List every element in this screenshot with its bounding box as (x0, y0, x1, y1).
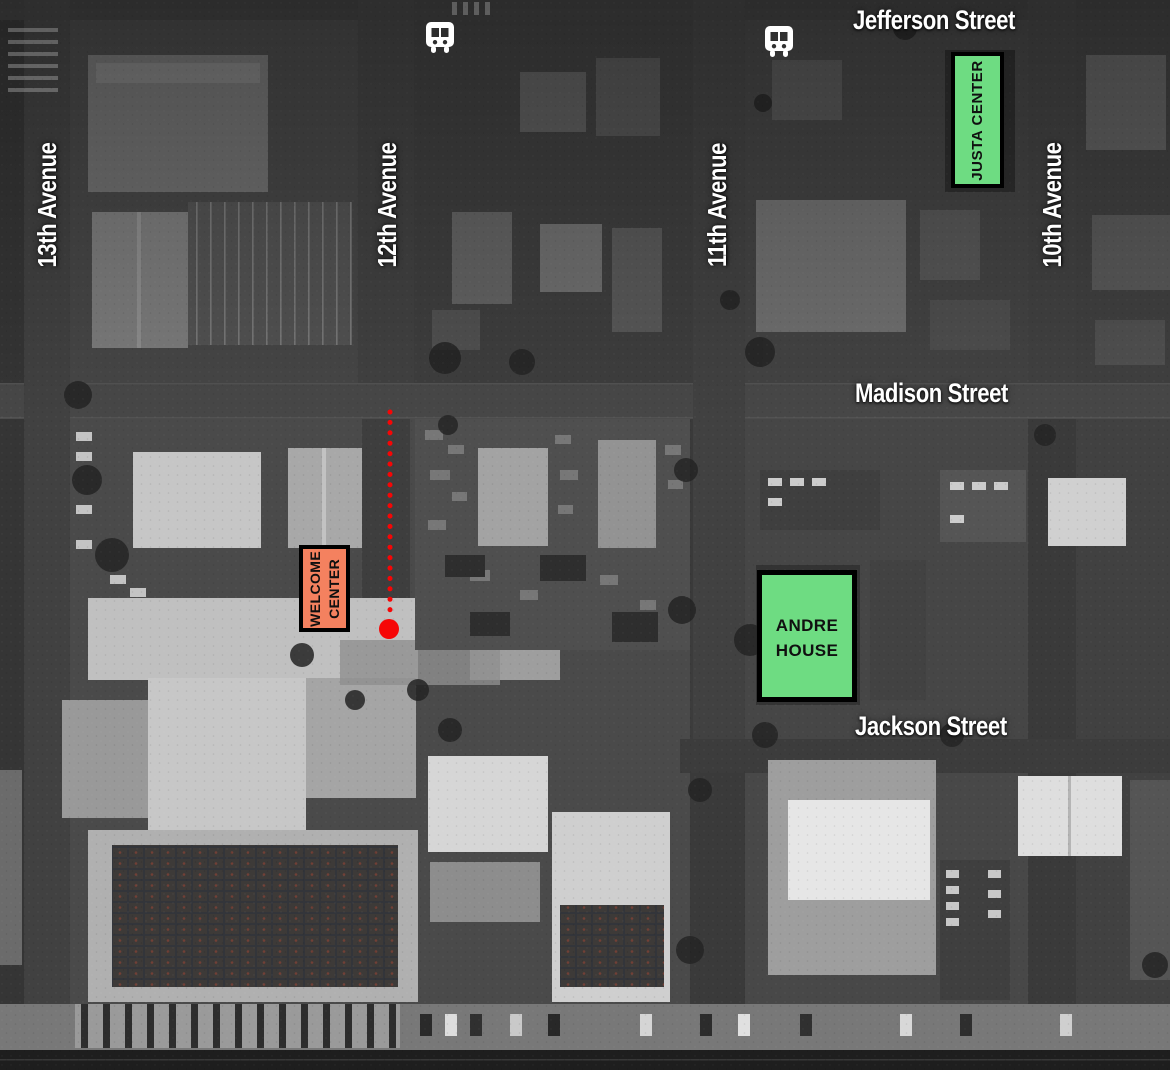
street-label-madison: Madison Street (855, 380, 1008, 407)
street-label-jefferson: Jefferson Street (853, 7, 1015, 34)
street-label-jackson: Jackson Street (855, 713, 1007, 740)
route-dotted-path (384, 404, 396, 624)
avenue-label-12th: 12th Avenue (374, 142, 400, 267)
andre-house-line2: HOUSE (776, 639, 838, 664)
justa-center-label: JUSTA CENTER (969, 60, 986, 181)
welcome-center-line1: WELCOME (306, 551, 325, 627)
welcome-center-box: WELCOME CENTER (299, 545, 350, 632)
justa-center-box: JUSTA CENTER (951, 52, 1004, 188)
bus-icon (762, 23, 796, 59)
map-canvas: Jefferson Street Madison Street Jackson … (0, 0, 1170, 1070)
andre-house-label: ANDRE HOUSE (776, 614, 838, 663)
avenue-label-11th: 11th Avenue (704, 143, 730, 267)
welcome-center-line2: CENTER (325, 551, 344, 627)
andre-house-box: ANDRE HOUSE (757, 570, 857, 702)
avenue-label-10th: 10th Avenue (1039, 142, 1065, 267)
route-endpoint-dot (379, 619, 399, 639)
bus-icon (423, 19, 457, 55)
andre-house-line1: ANDRE (776, 614, 838, 639)
avenue-label-13th: 13th Avenue (34, 142, 60, 267)
welcome-center-label: WELCOME CENTER (306, 551, 344, 627)
